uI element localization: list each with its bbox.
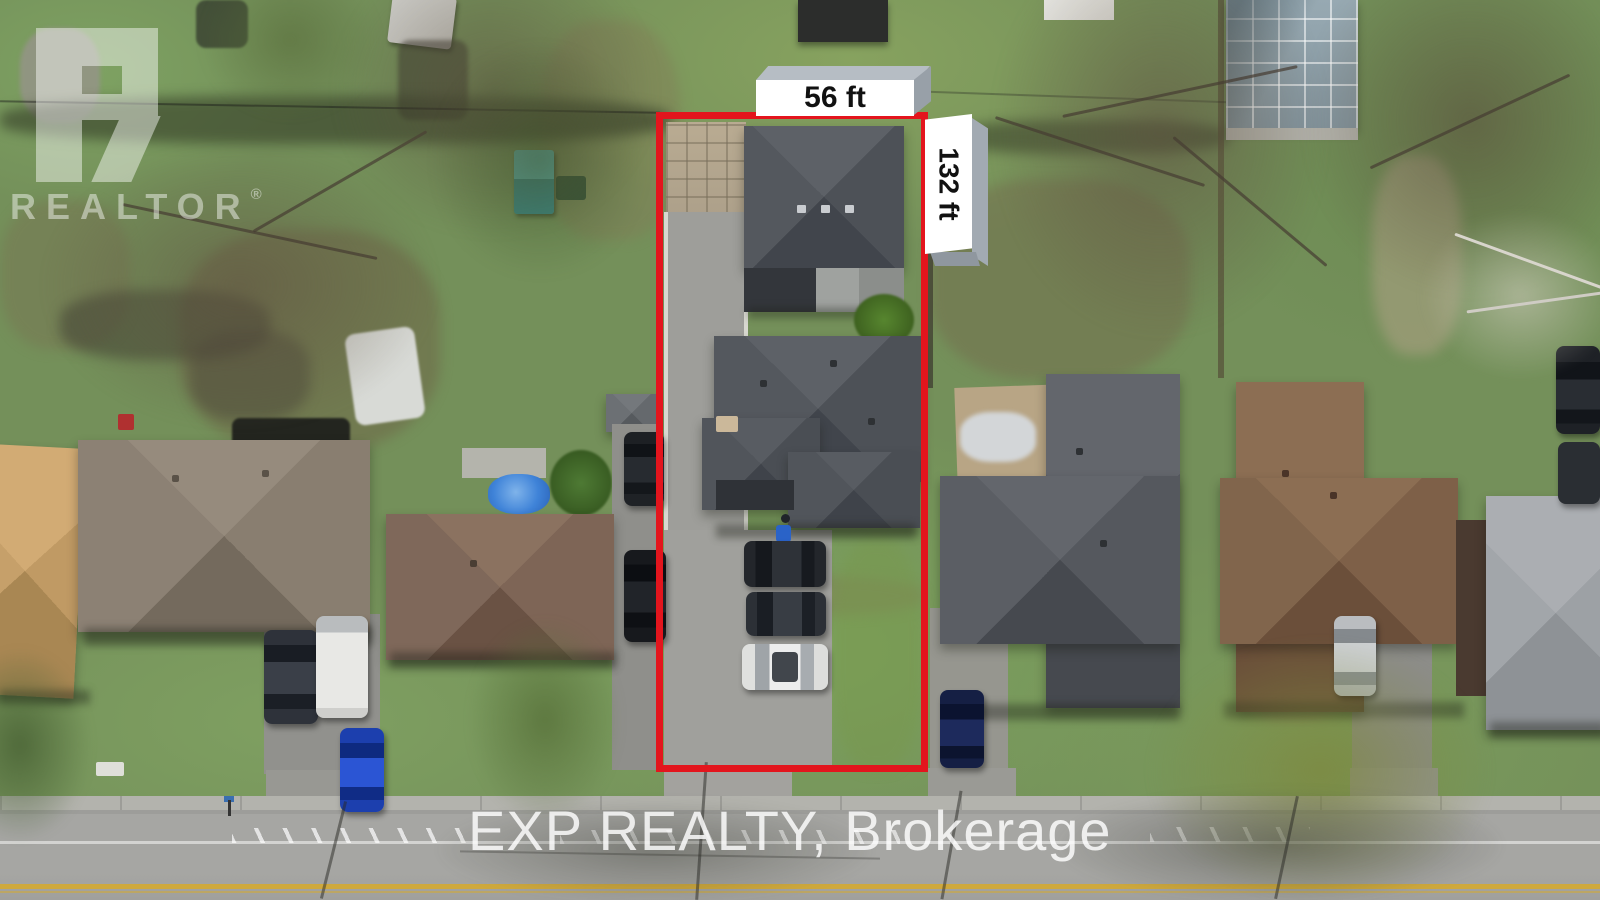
gray-tarp — [960, 412, 1036, 462]
roof-vent — [470, 560, 477, 567]
farright-car-dark2 — [1558, 442, 1600, 504]
depth-banner-bottom-face — [930, 252, 980, 266]
depth-dimension-label: 132 ft — [925, 114, 972, 254]
realtor-watermark-text: REALTOR® — [10, 186, 262, 228]
kiddie-pool — [488, 474, 550, 514]
registered-mark: ® — [251, 186, 262, 203]
left-drive-sedan — [264, 630, 318, 724]
realtor-text: REALTOR — [10, 186, 251, 227]
farright-house — [1486, 496, 1600, 730]
white-box-truck — [316, 616, 368, 718]
depth-banner-right-face — [972, 118, 988, 266]
roof-vent — [1100, 540, 1107, 547]
realtor-r-leg — [91, 116, 160, 182]
aerial-property-photo: 56 ft 132 ft REALTOR® EXP REALTY, Broker… — [0, 0, 1600, 900]
dark-shed — [798, 0, 888, 42]
roof-vent — [172, 475, 179, 482]
frontage-label-text: 56 ft — [804, 81, 866, 115]
house-shadow — [1490, 722, 1600, 738]
frontage-banner-top-face — [756, 66, 930, 80]
realtor-watermark-logo: REALTOR® — [10, 10, 260, 225]
roof-vent — [1282, 470, 1289, 477]
dark-blue-car — [940, 690, 984, 768]
gray-house-wing-horizontal — [940, 476, 1180, 644]
roof-vent — [1330, 492, 1337, 499]
roof-vent — [262, 470, 269, 477]
green-tree — [430, 40, 650, 280]
left-house-a — [78, 440, 370, 632]
red-bin — [118, 414, 134, 430]
street-sign-pole — [228, 800, 231, 816]
frontage-dimension-label: 56 ft — [756, 80, 914, 116]
paver-patio — [462, 448, 546, 478]
cedar-bush — [550, 450, 612, 516]
road-hatch-marks — [232, 828, 472, 843]
property-boundary-outline — [656, 112, 928, 772]
house-shadow — [960, 704, 1180, 720]
depth-label-text: 132 ft — [933, 147, 965, 220]
roof-vent — [1076, 448, 1083, 455]
utility-box — [96, 762, 124, 776]
brokerage-watermark: EXP REALTY, Brokerage — [468, 798, 1112, 863]
blue-car — [340, 728, 384, 812]
green-tree — [470, 620, 620, 820]
